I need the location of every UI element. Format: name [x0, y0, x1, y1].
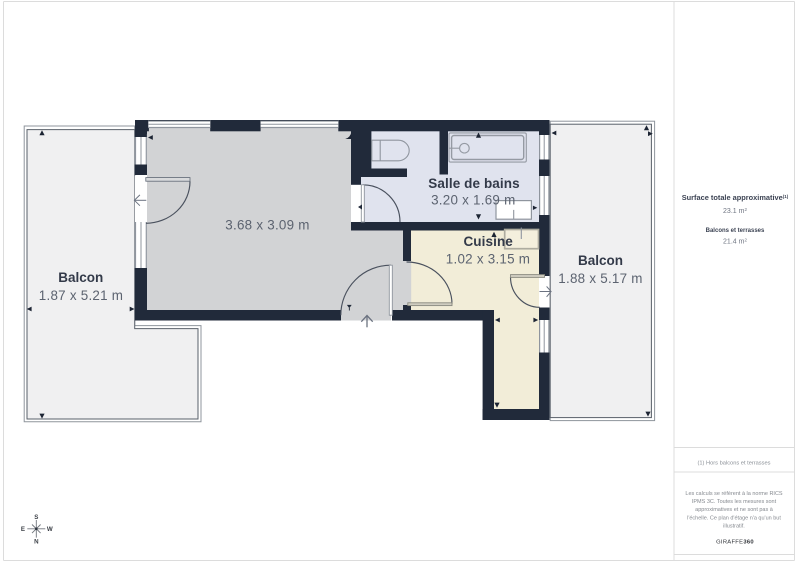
svg-text:IPMS 3C. Toutes les mesures so: IPMS 3C. Toutes les mesures sont	[692, 499, 777, 505]
svg-text:W: W	[47, 526, 53, 533]
svg-text:l'échelle. Ce plan d'étage n'a: l'échelle. Ce plan d'étage n'a qu'un but	[687, 515, 781, 521]
svg-text:3.20 x 1.69 m: 3.20 x 1.69 m	[431, 193, 515, 208]
svg-text:Les calculs se réfèrent à la n: Les calculs se réfèrent à la norme RICS	[685, 491, 783, 497]
svg-text:GIRAFFE360: GIRAFFE360	[716, 540, 754, 546]
svg-text:(1) Hors balcons et terrasses: (1) Hors balcons et terrasses	[697, 461, 770, 467]
svg-text:Balcon: Balcon	[58, 270, 103, 285]
svg-text:3.68 x 3.09 m: 3.68 x 3.09 m	[225, 218, 309, 233]
svg-text:Surface totale approximative(1: Surface totale approximative(1)	[682, 193, 789, 202]
svg-text:Salle de bains: Salle de bains	[428, 176, 519, 191]
svg-text:Cuisine: Cuisine	[463, 234, 513, 249]
svg-text:1.87 x 5.21 m: 1.87 x 5.21 m	[39, 288, 123, 303]
svg-text:N: N	[34, 539, 39, 546]
svg-text:E: E	[21, 526, 25, 533]
svg-text:21.4 m2: 21.4 m2	[723, 237, 747, 245]
svg-text:1.02 x 3.15 m: 1.02 x 3.15 m	[446, 251, 530, 266]
svg-text:Balcons et terrasses: Balcons et terrasses	[706, 228, 765, 234]
svg-text:23.1 m2: 23.1 m2	[723, 207, 747, 215]
svg-text:1.88 x 5.17 m: 1.88 x 5.17 m	[558, 271, 642, 286]
svg-text:approximatives et ne sont pas: approximatives et ne sont pas à	[695, 507, 774, 513]
svg-text:illustratif.: illustratif.	[723, 523, 745, 529]
svg-text:S: S	[34, 514, 38, 521]
svg-text:Balcon: Balcon	[578, 253, 623, 268]
